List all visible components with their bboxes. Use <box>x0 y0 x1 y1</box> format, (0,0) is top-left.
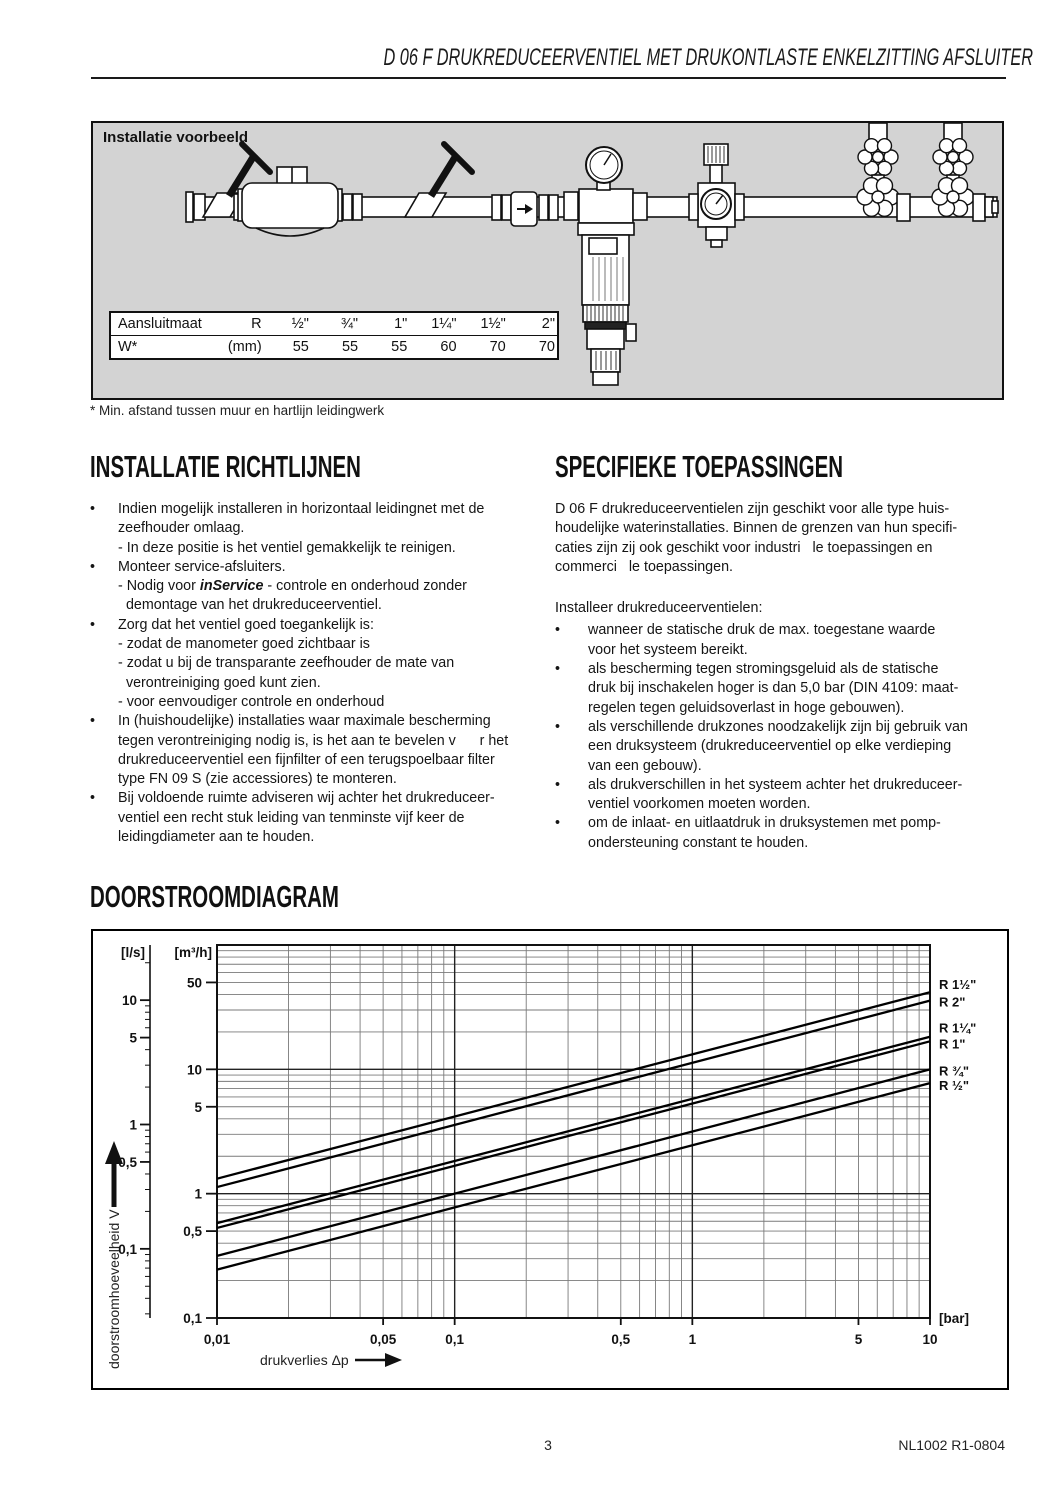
bullet-text: om de inlaat- en uitlaatdruk in druksyst… <box>588 814 941 853</box>
section-title-installation: INSTALLATIE RICHTLIJNEN <box>90 451 361 482</box>
table-cell: 55 <box>360 339 409 355</box>
installation-guidelines-column: • Indien mogelijk installeren in horizon… <box>90 500 508 847</box>
svg-text:5: 5 <box>194 1100 202 1115</box>
table-row: Aansluitmaat R ½" ¾" 1" 1¼" 1½" 2" <box>111 313 557 336</box>
connection-size-table: Aansluitmaat R ½" ¾" 1" 1¼" 1½" 2" W* (m… <box>109 311 559 360</box>
handwheel-valve-2 <box>932 123 974 216</box>
bullet-marker: • <box>90 558 118 616</box>
bullet-marker: • <box>555 718 588 776</box>
svg-text:5: 5 <box>855 1332 863 1347</box>
table-cell: ¾" <box>311 316 360 332</box>
bullet-marker: • <box>555 621 588 660</box>
table-cell: 2" <box>508 316 557 332</box>
bullet-text: als bescherming tegen stromingsgeluid al… <box>588 660 958 718</box>
table-cell: Aansluitmaat <box>111 316 222 332</box>
svg-text:0,1: 0,1 <box>183 1311 202 1326</box>
svg-text:10: 10 <box>922 1332 937 1347</box>
list-item: • als drukverschillen in het systeem ach… <box>555 776 968 815</box>
table-cell: 70 <box>508 339 557 355</box>
svg-text:R 2": R 2" <box>939 995 965 1010</box>
svg-text:10: 10 <box>122 993 137 1008</box>
list-item: • In (huishoudelijke) installaties waar … <box>90 712 508 789</box>
svg-text:doorstroomhoeveelheid V: doorstroomhoeveelheid V <box>106 1209 122 1369</box>
check-valve <box>511 192 537 226</box>
svg-text:1: 1 <box>689 1332 697 1347</box>
list-item: • wanneer de statische druk de max. toeg… <box>555 621 968 660</box>
table-row: W* (mm) 55 55 55 60 70 70 <box>111 336 557 358</box>
svg-text:0,05: 0,05 <box>370 1332 397 1347</box>
list-item: • Zorg dat het ventiel goed toegankelijk… <box>90 616 508 712</box>
table-cell: 55 <box>262 339 311 355</box>
svg-text:R 1¼": R 1¼" <box>939 1021 976 1036</box>
page-header-title: D 06 F DRUKREDUCEERVENTIEL MET DRUKONTLA… <box>383 44 1005 72</box>
water-meter <box>238 167 342 236</box>
header-rule <box>91 77 1006 79</box>
svg-text:[m³/h]: [m³/h] <box>175 945 213 960</box>
panel-footnote: * Min. afstand tussen muur en hartlijn l… <box>90 403 384 418</box>
svg-text:R ¾": R ¾" <box>939 1063 969 1078</box>
table-cell: 60 <box>409 339 458 355</box>
handwheel <box>933 139 973 176</box>
svg-text:50: 50 <box>187 975 202 990</box>
list-item: • Bij voldoende ruimte adviseren wij ach… <box>90 789 508 847</box>
svg-text:R 1½": R 1½" <box>939 977 976 992</box>
svg-text:1: 1 <box>129 1117 137 1132</box>
svg-text:1: 1 <box>194 1187 202 1202</box>
svg-text:10: 10 <box>187 1062 202 1077</box>
bullet-text: Zorg dat het ventiel goed toegankelijk i… <box>118 616 454 712</box>
bullet-marker: • <box>555 814 588 853</box>
svg-text:0,5: 0,5 <box>183 1224 202 1239</box>
pressure-reducing-filter-combination <box>564 147 636 385</box>
datasheet-page: D 06 F DRUKREDUCEERVENTIEL MET DRUKONTLA… <box>0 0 1060 1500</box>
svg-text:R ½": R ½" <box>939 1078 969 1093</box>
bullet-marker: • <box>555 660 588 718</box>
document-code: NL1002 R1-0804 <box>91 1437 1005 1453</box>
svg-text:0,1: 0,1 <box>445 1332 464 1347</box>
table-cell: (mm) <box>222 339 261 355</box>
table-cell: R <box>222 316 261 332</box>
table-cell: ½" <box>262 316 311 332</box>
list-item: • om de inlaat- en uitlaatdruk in druksy… <box>555 814 968 853</box>
list-item: • als verschillende drukzones noodzakeli… <box>555 718 968 776</box>
svg-text:R 1": R 1" <box>939 1036 965 1051</box>
table-cell: 70 <box>459 339 508 355</box>
installation-example-panel: Installatie voorbeeld Aansluitmaat R ½" … <box>91 121 1004 400</box>
bullet-marker: • <box>90 616 118 712</box>
table-cell: 55 <box>311 339 360 355</box>
list-item: • als bescherming tegen stromingsgeluid … <box>555 660 968 718</box>
panel-title: Installatie voorbeeld <box>103 129 248 146</box>
specific-applications-column: D 06 F drukreduceerventielen zijn geschi… <box>555 500 968 853</box>
svg-text:[bar]: [bar] <box>939 1311 969 1326</box>
inservice-emphasis: inService <box>200 578 264 594</box>
bullet-text: Bij voldoende ruimte adviseren wij achte… <box>118 789 495 847</box>
bullet-marker: • <box>90 712 118 789</box>
table-cell: 1¼" <box>409 316 458 332</box>
bullet-marker: • <box>555 776 588 815</box>
list-item: • Indien mogelijk installeren in horizon… <box>90 500 508 558</box>
handwheel <box>858 139 898 176</box>
bullet-text: wanneer de statische druk de max. toeges… <box>588 621 935 660</box>
bullet-marker: • <box>90 500 118 558</box>
svg-text:0,01: 0,01 <box>204 1332 231 1347</box>
pressure-reducing-valve <box>698 144 735 247</box>
bullet-marker: • <box>90 789 118 847</box>
svg-text:drukverlies Δp: drukverlies Δp <box>260 1352 349 1368</box>
bullet-text: als drukverschillen in het systeem achte… <box>588 776 962 815</box>
applications-intro: D 06 F drukreduceerventielen zijn geschi… <box>555 500 968 577</box>
flow-chart-svg: 5010510,50,10,010,050,10,51510[bar]10510… <box>93 931 1007 1388</box>
section-title-flow-diagram: DOORSTROOMDIAGRAM <box>90 881 339 912</box>
svg-text:[l/s]: [l/s] <box>121 945 145 960</box>
applications-subtitle: Installeer drukreduceerventielen: <box>555 599 968 618</box>
table-cell: 1½" <box>459 316 508 332</box>
section-title-applications: SPECIFIEKE TOEPASSINGEN <box>555 451 843 482</box>
table-cell: W* <box>111 339 222 355</box>
list-item: • Monteer service-afsluiters. - Nodig vo… <box>90 558 508 616</box>
handwheel-valve-1 <box>857 123 899 216</box>
table-cell: 1" <box>360 316 409 332</box>
bullet-text: als verschillende drukzones noodzakelijk… <box>588 718 968 776</box>
bullet-text: Indien mogelijk installeren in horizonta… <box>118 500 484 558</box>
bullet-text: Monteer service-afsluiters. - Nodig voor… <box>118 558 467 616</box>
bullet-text: In (huishoudelijke) installaties waar ma… <box>118 712 508 789</box>
svg-text:0,5: 0,5 <box>611 1332 630 1347</box>
flow-chart: 5010510,50,10,010,050,10,51510[bar]10510… <box>91 929 1009 1390</box>
svg-text:5: 5 <box>129 1031 137 1046</box>
